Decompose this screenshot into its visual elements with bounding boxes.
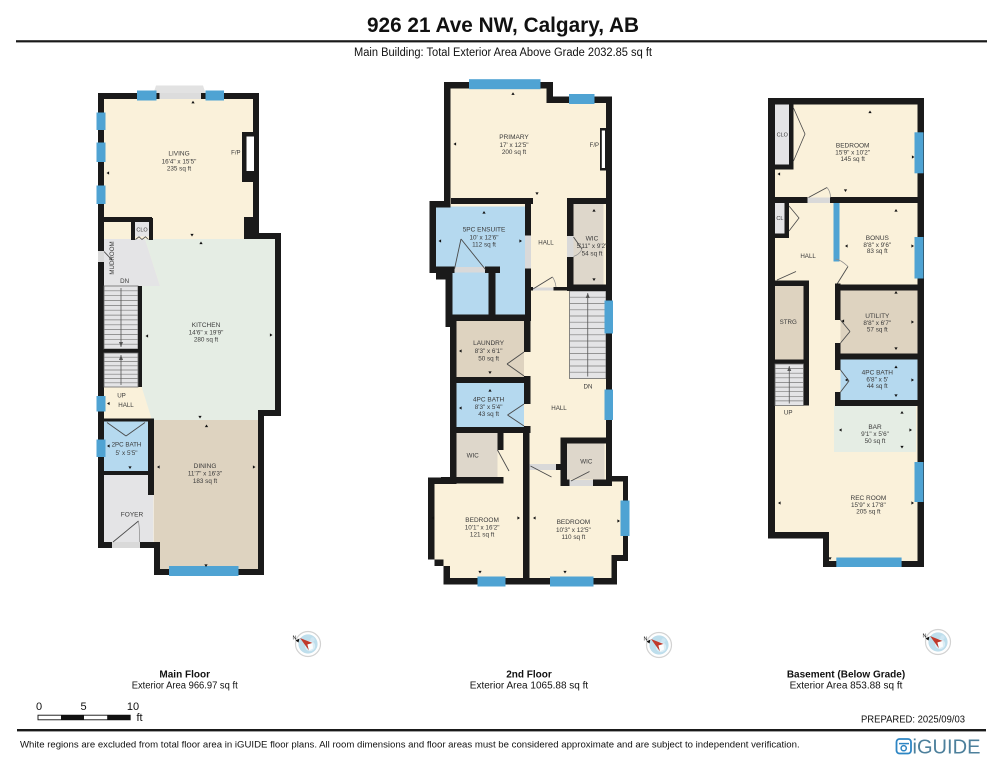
svg-text:UP: UP bbox=[117, 392, 126, 399]
svg-text:50 sq ft: 50 sq ft bbox=[478, 355, 499, 362]
svg-text:57 sq ft: 57 sq ft bbox=[867, 327, 888, 334]
svg-text:112 sq ft: 112 sq ft bbox=[472, 242, 496, 249]
svg-text:WIC: WIC bbox=[586, 236, 599, 243]
svg-text:14'6" x 19'9": 14'6" x 19'9" bbox=[189, 330, 224, 337]
svg-text:50 sq ft: 50 sq ft bbox=[865, 438, 886, 445]
svg-text:BEDROOM: BEDROOM bbox=[465, 517, 499, 524]
svg-text:2nd Floor: 2nd Floor bbox=[506, 669, 552, 680]
svg-text:8'3" x 6'1": 8'3" x 6'1" bbox=[475, 348, 503, 355]
svg-text:43 sq ft: 43 sq ft bbox=[478, 411, 499, 418]
svg-text:White regions are excluded fro: White regions are excluded from total fl… bbox=[20, 740, 800, 751]
svg-text:HALL: HALL bbox=[800, 253, 816, 260]
svg-text:MUDROOM: MUDROOM bbox=[109, 241, 116, 274]
svg-text:CLO: CLO bbox=[136, 228, 148, 234]
svg-text:17' x 12'5": 17' x 12'5" bbox=[499, 142, 528, 149]
svg-text:5'11" x 9'2": 5'11" x 9'2" bbox=[577, 243, 608, 250]
svg-text:54 sq ft: 54 sq ft bbox=[582, 251, 603, 258]
svg-text:280 sq ft: 280 sq ft bbox=[194, 337, 219, 344]
svg-text:145 sq ft: 145 sq ft bbox=[841, 156, 866, 163]
svg-text:5: 5 bbox=[80, 701, 86, 713]
svg-text:CL: CL bbox=[776, 216, 783, 222]
svg-text:4PC BATH: 4PC BATH bbox=[473, 397, 505, 404]
svg-text:UP: UP bbox=[784, 410, 793, 417]
svg-text:121 sq ft: 121 sq ft bbox=[470, 532, 495, 539]
svg-text:ft: ft bbox=[137, 712, 143, 724]
svg-text:iGUIDE: iGUIDE bbox=[913, 737, 981, 759]
svg-text:BEDROOM: BEDROOM bbox=[557, 519, 591, 526]
svg-text:REC ROOM: REC ROOM bbox=[851, 495, 887, 502]
svg-text:BAR: BAR bbox=[868, 424, 882, 431]
svg-text:DN: DN bbox=[584, 383, 593, 390]
svg-text:HALL: HALL bbox=[538, 240, 554, 247]
svg-text:PRIMARY: PRIMARY bbox=[499, 134, 529, 141]
svg-text:10'3" x 12'5": 10'3" x 12'5" bbox=[556, 527, 591, 534]
svg-text:HALL: HALL bbox=[551, 405, 567, 412]
svg-text:DINING: DINING bbox=[194, 463, 217, 470]
svg-text:11'7" x 16'3": 11'7" x 16'3" bbox=[188, 471, 222, 478]
svg-text:44 sq ft: 44 sq ft bbox=[867, 383, 888, 390]
svg-text:83 sq ft: 83 sq ft bbox=[867, 248, 888, 255]
svg-text:LAUNDRY: LAUNDRY bbox=[473, 340, 505, 347]
svg-text:HALL: HALL bbox=[118, 402, 134, 409]
svg-text:WIC: WIC bbox=[580, 458, 593, 465]
svg-text:235 sq ft: 235 sq ft bbox=[167, 165, 192, 172]
svg-text:Main Floor: Main Floor bbox=[159, 669, 210, 680]
svg-text:10' x 12'6": 10' x 12'6" bbox=[469, 235, 498, 242]
svg-text:0: 0 bbox=[36, 701, 42, 713]
svg-text:183 sq ft: 183 sq ft bbox=[193, 478, 218, 485]
svg-text:WIC: WIC bbox=[467, 452, 480, 459]
svg-text:BEDROOM: BEDROOM bbox=[836, 143, 870, 150]
svg-text:UTILITY: UTILITY bbox=[865, 313, 890, 320]
svg-text:STRG: STRG bbox=[780, 319, 797, 326]
svg-text:Exterior Area 1065.88 sq ft: Exterior Area 1065.88 sq ft bbox=[470, 681, 589, 692]
svg-text:5' x 5'5": 5' x 5'5" bbox=[116, 450, 138, 457]
svg-text:FOYER: FOYER bbox=[121, 512, 144, 519]
svg-text:F/P: F/P bbox=[231, 151, 240, 157]
svg-text:KITCHEN: KITCHEN bbox=[192, 322, 221, 329]
svg-text:Main Building: Total Exterior: Main Building: Total Exterior Area Above… bbox=[354, 47, 653, 59]
svg-text:8'3" x 5'4": 8'3" x 5'4" bbox=[475, 404, 503, 411]
svg-text:LIVING: LIVING bbox=[168, 151, 189, 158]
svg-text:10'1" x 16'2": 10'1" x 16'2" bbox=[465, 525, 500, 532]
svg-text:F/P: F/P bbox=[590, 143, 599, 149]
svg-text:Exterior Area 966.97 sq ft: Exterior Area 966.97 sq ft bbox=[132, 681, 238, 692]
svg-text:2PC BATH: 2PC BATH bbox=[112, 442, 142, 449]
svg-text:110 sq ft: 110 sq ft bbox=[561, 534, 585, 541]
svg-text:CLO: CLO bbox=[777, 132, 789, 138]
svg-text:Basement (Below Grade): Basement (Below Grade) bbox=[787, 669, 905, 680]
svg-text:9'1" x 5'6": 9'1" x 5'6" bbox=[861, 431, 889, 438]
svg-text:5PC ENSUITE: 5PC ENSUITE bbox=[463, 227, 506, 234]
svg-text:205 sq ft: 205 sq ft bbox=[856, 509, 881, 516]
svg-text:PREPARED: 2025/09/03: PREPARED: 2025/09/03 bbox=[861, 715, 965, 726]
svg-text:200 sq ft: 200 sq ft bbox=[502, 149, 527, 156]
svg-text:926 21 Ave NW, Calgary, AB: 926 21 Ave NW, Calgary, AB bbox=[367, 13, 639, 37]
svg-text:Exterior Area 853.88 sq ft: Exterior Area 853.88 sq ft bbox=[790, 681, 903, 692]
svg-text:4PC BATH: 4PC BATH bbox=[862, 369, 894, 376]
svg-text:DN: DN bbox=[120, 278, 129, 285]
